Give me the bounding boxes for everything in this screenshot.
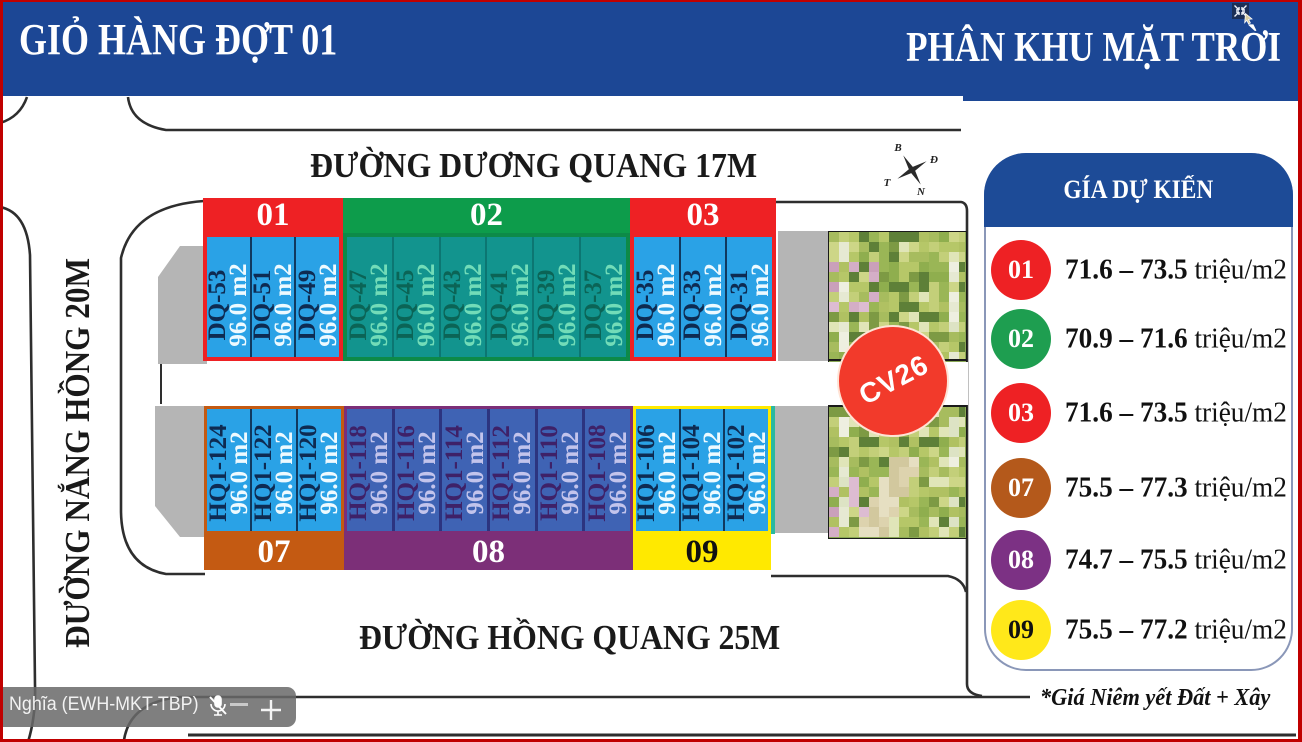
svg-text:T: T <box>884 177 892 189</box>
svg-text:Đ: Đ <box>929 154 938 166</box>
svg-text:N: N <box>916 186 926 198</box>
svg-text:B: B <box>893 142 901 154</box>
